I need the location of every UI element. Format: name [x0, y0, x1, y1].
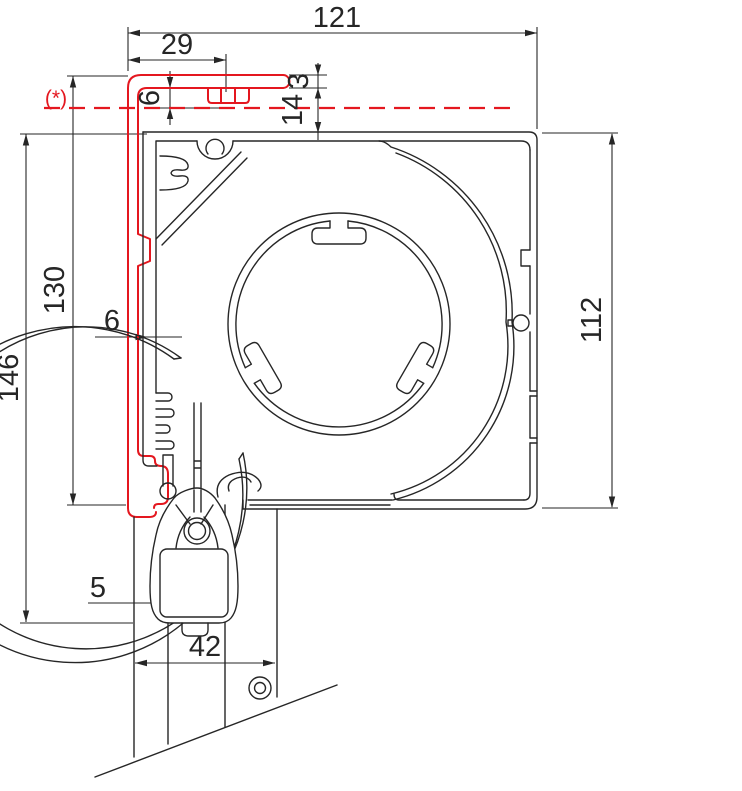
- screw-hole-inner: [255, 683, 266, 694]
- roller-shutter-section-drawing: 121 29 6 3 14 146 130 6 112 5 42 (*): [0, 0, 742, 791]
- corner-strut: [156, 152, 247, 245]
- drum-t-slots: [198, 213, 442, 465]
- dim-label-top-clearance: 14: [277, 94, 309, 126]
- dim-label-overall-width: 121: [313, 2, 361, 34]
- dim-label-gap-under-plate: 6: [134, 90, 166, 106]
- dim-label-plate-thickness: 3: [283, 73, 315, 89]
- dimension-labels: 121 29 6 3 14 146 130 6 112 5 42 (*): [0, 2, 608, 663]
- dim-label-side-offset: 6: [104, 305, 120, 337]
- dim-label-total-height: 146: [0, 354, 25, 402]
- dim-label-slat-wall: 5: [90, 572, 106, 604]
- curtain-funnel-guide: [217, 472, 261, 497]
- dim-label-bracket-offset: 29: [161, 29, 193, 61]
- right-wall-screw-boss: [513, 315, 529, 331]
- screw-hole-outer: [249, 677, 271, 699]
- dimension-lines: [20, 27, 618, 666]
- break-line: [95, 685, 337, 777]
- shutter-box-profile: [143, 132, 537, 509]
- technical-drawing-canvas: 121 29 6 3 14 146 130 6 112 5 42 (*): [0, 0, 742, 791]
- bottom-details: [95, 677, 337, 777]
- shutter-drum: [0, 141, 514, 663]
- red-fixing-clip: [208, 88, 249, 103]
- dim-label-rail-width: 42: [189, 631, 221, 663]
- reference-note-label: (*): [45, 87, 67, 110]
- dim-label-box-height: 112: [576, 297, 608, 343]
- spiral-guide: [379, 141, 514, 500]
- slat-guide-comb: [156, 393, 174, 449]
- dim-label-adapter-height: 130: [39, 266, 71, 314]
- left-wall-clip: [160, 156, 188, 190]
